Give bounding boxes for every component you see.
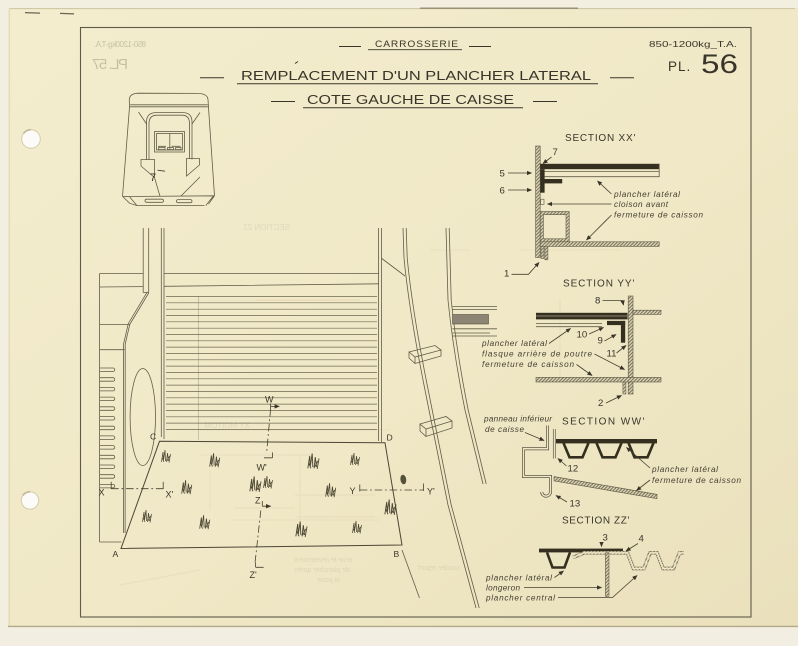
svg-text:1: 1 — [504, 269, 509, 280]
svg-text:3: 3 — [603, 533, 608, 544]
svg-text:Z: Z — [255, 496, 261, 506]
svg-text:B: B — [394, 549, 400, 559]
svg-text:plancher central: plancher central — [485, 594, 555, 603]
svg-text:56: 56 — [701, 49, 738, 79]
svg-text:X: X — [99, 488, 105, 498]
svg-text:fermeture de caisson: fermeture de caisson — [652, 476, 741, 485]
svg-text:flasque arrière de poutre: flasque arrière de poutre — [482, 350, 592, 359]
svg-text:7: 7 — [553, 147, 558, 158]
svg-text:fermeture de caisson: fermeture de caisson — [614, 211, 703, 220]
svg-text:2: 2 — [598, 398, 603, 409]
svg-text:plancher latéral: plancher latéral — [613, 190, 680, 199]
svg-text:XY MOITOM: XY MOITOM — [204, 421, 250, 430]
svg-text:9: 9 — [598, 336, 603, 347]
svg-text:6: 6 — [500, 186, 505, 197]
svg-text:Z': Z' — [250, 570, 257, 580]
svg-text:SECTION YY': SECTION YY' — [563, 279, 636, 290]
svg-text:cloison avant: cloison avant — [614, 200, 669, 209]
svg-text:W': W' — [257, 463, 267, 473]
svg-text:12: 12 — [568, 464, 579, 475]
svg-text:10: 10 — [577, 330, 588, 341]
svg-text:la pose: la pose — [317, 577, 340, 584]
svg-text:Y: Y — [350, 486, 356, 496]
svg-text:850-1200kg-T.A.: 850-1200kg-T.A. — [94, 40, 146, 49]
svg-text:PL. 57: PL. 57 — [92, 56, 128, 73]
svg-text:850-1200kg_T.A.: 850-1200kg_T.A. — [649, 39, 737, 49]
svg-text:plancher latéral: plancher latéral — [651, 465, 718, 474]
svg-text:5: 5 — [500, 169, 505, 180]
svg-text:Y': Y' — [427, 487, 435, 497]
svg-text:W: W — [265, 395, 274, 405]
svg-text:CARROSSERIE: CARROSSERIE — [375, 39, 459, 49]
svg-text:8: 8 — [595, 296, 600, 307]
svg-text:de plancher aprés: de plancher aprés — [293, 567, 350, 574]
svg-text:longeron: longeron — [486, 584, 520, 593]
svg-text:4: 4 — [639, 534, 645, 545]
svg-text:REMPLACEMENT D'UN PLANCHER LAT: REMPLACEMENT D'UN PLANCHER LATERAL — [241, 68, 591, 83]
svg-text:11: 11 — [607, 349, 617, 360]
svg-text:C: C — [150, 432, 156, 442]
svg-text:plancher latéral: plancher latéral — [481, 339, 547, 348]
svg-text:13: 13 — [570, 499, 581, 510]
svg-text:7: 7 — [150, 172, 156, 184]
svg-text:fermeture de caisson: fermeture de caisson — [482, 360, 574, 369]
svg-text:ervir le revetement: ervir le revetement — [293, 557, 352, 564]
svg-text:D: D — [387, 433, 393, 443]
svg-text:SECTION ZZ': SECTION ZZ' — [562, 516, 631, 527]
svg-text:plancher latéral: plancher latéral — [485, 574, 552, 583]
svg-text:COTE GAUCHE DE CAISSE: COTE GAUCHE DE CAISSE — [307, 92, 514, 107]
svg-text:SECTION WW': SECTION WW' — [562, 417, 646, 428]
svg-text:SECTION XX': SECTION XX' — [565, 133, 637, 144]
svg-text:PL.: PL. — [668, 59, 691, 74]
svg-text:SECTION 22: SECTION 22 — [243, 223, 290, 232]
svg-text:X': X' — [166, 490, 174, 500]
svg-text:de caisse: de caisse — [485, 425, 524, 434]
svg-text:A: A — [113, 549, 119, 559]
svg-text:panneau inférieur: panneau inférieur — [483, 415, 552, 424]
svg-text:souder report: souder report — [417, 565, 460, 572]
